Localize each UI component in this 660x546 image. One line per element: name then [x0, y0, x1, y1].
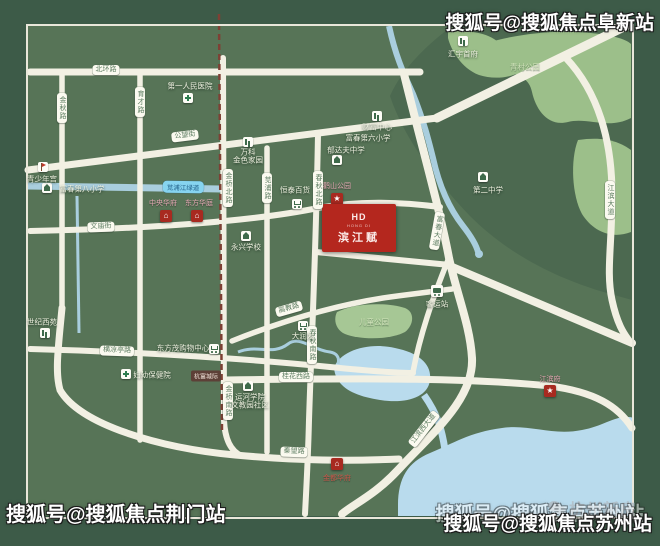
project-tagline: HONG DI	[347, 223, 371, 228]
map-canvas	[0, 0, 660, 546]
watermark-bottom-left: 搜狐号@搜狐焦点荆门站	[6, 498, 226, 527]
watermark-bottom-right: 搜狐号@搜狐焦点苏州站	[443, 509, 652, 536]
project-box: HD HONG DI 滨江赋	[322, 204, 396, 252]
watermark-top-right: 搜狐号@搜狐焦点阜新站	[445, 8, 654, 35]
children-park-area	[335, 304, 412, 338]
project-logo: HD	[352, 212, 367, 222]
map-screenshot: ★★⌂⌂⌂ HD HONG DI 滨江赋 北环路金秋路育才路公望街文庙街金桥北路…	[0, 0, 660, 546]
project-name: 滨江赋	[338, 229, 380, 245]
canal	[28, 186, 221, 189]
